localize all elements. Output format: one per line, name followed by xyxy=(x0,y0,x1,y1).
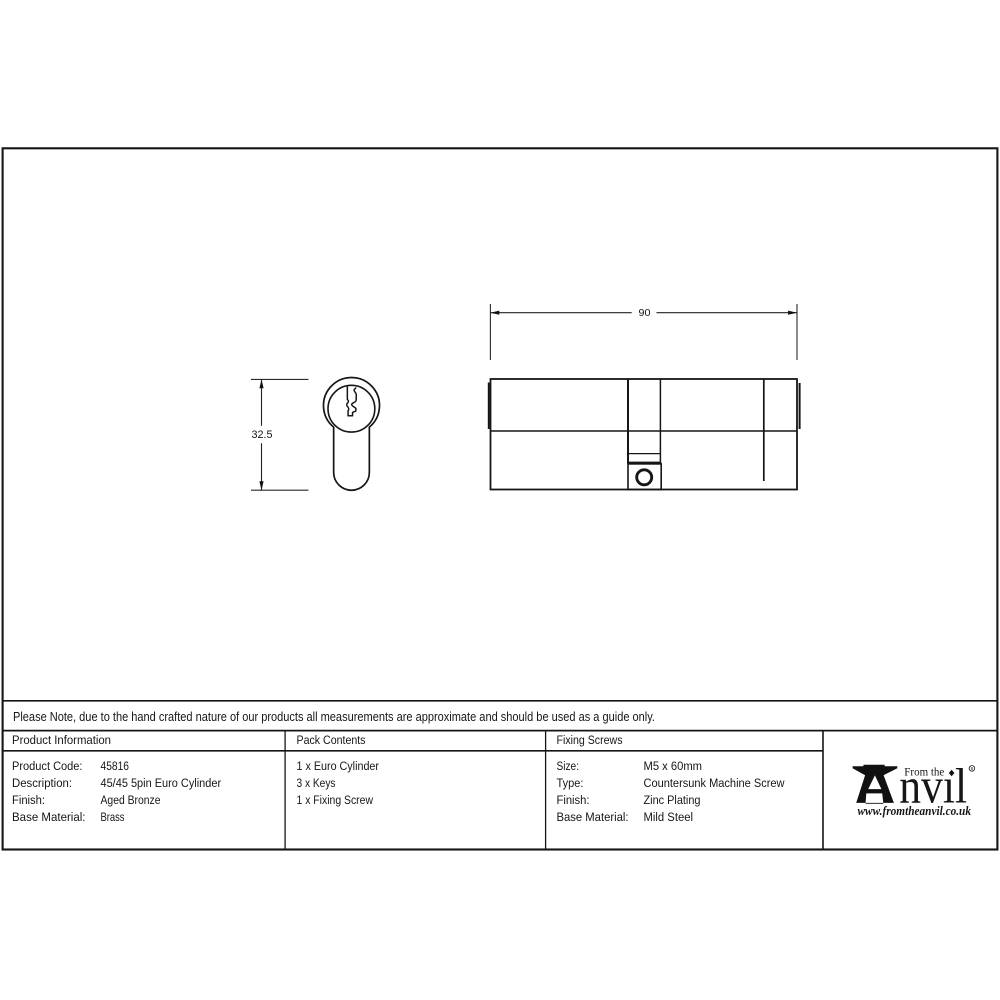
svg-text:3 x Keys: 3 x Keys xyxy=(297,776,336,790)
svg-text:Aged Bronze: Aged Bronze xyxy=(101,793,161,807)
svg-text:Product Information: Product Information xyxy=(12,733,111,747)
svg-text:Finish:: Finish: xyxy=(557,793,590,807)
svg-text:www.fromtheanvil.co.uk: www.fromtheanvil.co.uk xyxy=(858,804,972,818)
svg-text:Finish:: Finish: xyxy=(12,793,45,807)
svg-text:45816: 45816 xyxy=(101,759,130,773)
svg-text:Size:: Size: xyxy=(557,759,580,773)
svg-text:90: 90 xyxy=(639,308,651,319)
svg-text:Mild Steel: Mild Steel xyxy=(644,810,694,824)
svg-text:Type:: Type: xyxy=(557,776,584,790)
svg-text:Please Note, due to the hand c: Please Note, due to the hand crafted nat… xyxy=(13,710,655,724)
svg-text:32.5: 32.5 xyxy=(252,429,273,441)
svg-text:Base Material:: Base Material: xyxy=(557,810,629,824)
svg-text:Brass: Brass xyxy=(101,810,125,824)
svg-text:45/45 5pin Euro Cylinder: 45/45 5pin Euro Cylinder xyxy=(101,776,222,790)
svg-text:Countersunk Machine Screw: Countersunk Machine Screw xyxy=(644,776,785,790)
svg-text:M5 x 60mm: M5 x 60mm xyxy=(644,759,703,773)
svg-text:Product Code:: Product Code: xyxy=(12,759,83,773)
svg-text:Pack Contents: Pack Contents xyxy=(297,733,366,747)
svg-text:Base Material:: Base Material: xyxy=(12,810,86,824)
svg-text:1 x Euro Cylinder: 1 x Euro Cylinder xyxy=(297,759,380,773)
svg-text:Description:: Description: xyxy=(12,776,72,790)
svg-text:Fixing Screws: Fixing Screws xyxy=(557,733,623,747)
svg-text:1 x Fixing Screw: 1 x Fixing Screw xyxy=(297,793,374,807)
svg-text:Zinc Plating: Zinc Plating xyxy=(644,793,701,807)
